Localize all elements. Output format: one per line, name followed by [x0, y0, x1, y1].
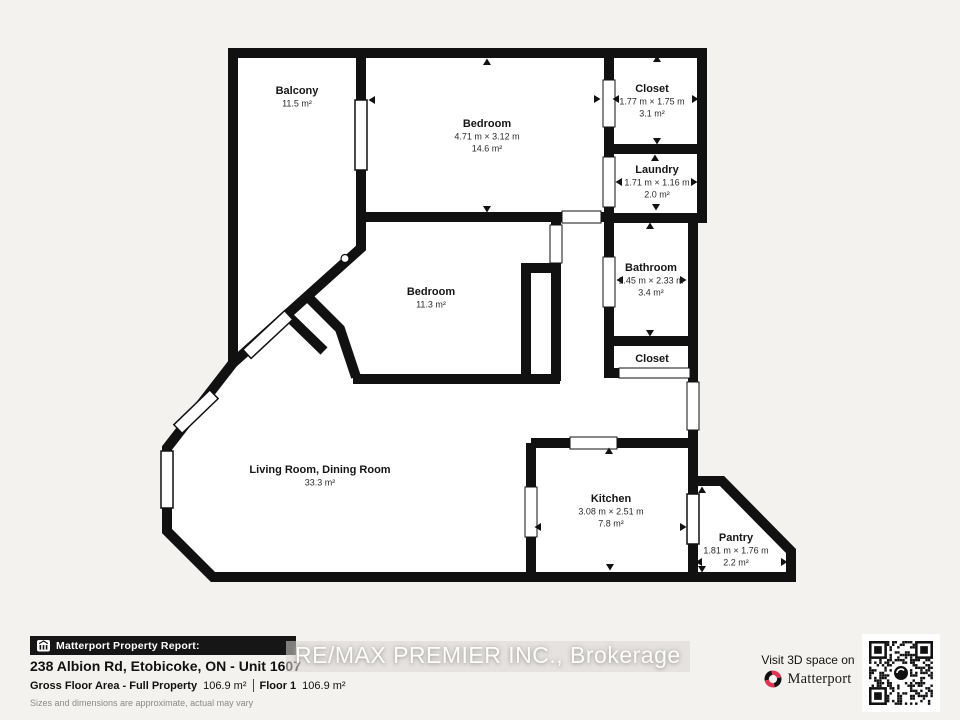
svg-text:3.1 m²: 3.1 m² [639, 109, 665, 119]
svg-text:Closet: Closet [635, 353, 669, 365]
window-living-left [161, 451, 173, 508]
floor-label: Floor 1 [260, 680, 297, 692]
floor-plan-svg: Balcony11.5 m²Bedroom4.71 m × 3.12 m14.6… [0, 0, 960, 632]
brokerage-watermark: RE/MAX PREMIER INC., Brokerage [286, 641, 690, 672]
svg-text:2.0 m²: 2.0 m² [644, 190, 670, 200]
svg-text:7.8 m²: 7.8 m² [598, 519, 624, 529]
svg-text:Balcony: Balcony [276, 85, 320, 97]
qr-code [862, 634, 940, 712]
gfa-value: 106.9 m² [203, 680, 246, 692]
disclaimer-text: Sizes and dimensions are approximate, ac… [30, 698, 253, 708]
svg-text:1.71 m × 1.16 m: 1.71 m × 1.16 m [624, 178, 689, 188]
svg-text:1.81 m × 1.76 m: 1.81 m × 1.76 m [703, 546, 768, 556]
door-bedroom-middle [550, 225, 562, 263]
building-icon [37, 639, 50, 652]
visit-3d-text: Visit 3D space on [756, 653, 860, 667]
svg-text:Bedroom: Bedroom [463, 118, 512, 130]
door-pivot-marker [341, 255, 349, 263]
room-label-closet-lower: Closet [635, 353, 669, 365]
matterport-report-bar: Matterport Property Report: [30, 636, 296, 655]
svg-text:3.4 m²: 3.4 m² [638, 288, 664, 298]
svg-text:Bathroom: Bathroom [625, 262, 677, 274]
matterport-logo-row: Matterport [756, 670, 860, 688]
door-closet-top [603, 80, 615, 127]
svg-text:Closet: Closet [635, 83, 669, 95]
svg-text:33.3 m²: 33.3 m² [305, 478, 336, 488]
matterport-wordmark: Matterport [787, 671, 851, 688]
gross-floor-area-line: Gross Floor Area - Full Property 106.9 m… [30, 679, 346, 692]
svg-text:14.6 m²: 14.6 m² [472, 144, 503, 154]
svg-text:Pantry: Pantry [719, 532, 754, 544]
svg-text:2.2 m²: 2.2 m² [723, 558, 749, 568]
door-entry [687, 382, 699, 430]
svg-text:Kitchen: Kitchen [591, 493, 632, 505]
window-balcony-bedroom [355, 100, 367, 170]
property-address: 238 Albion Rd, Etobicoke, ON - Unit 1607 [30, 658, 301, 674]
matterport-pinwheel-icon [764, 670, 782, 688]
report-bar-label: Matterport Property Report: [56, 640, 200, 652]
door-bathroom [603, 257, 615, 307]
visit-3d-block: Visit 3D space on Matterport [756, 653, 860, 688]
svg-text:1.77 m × 1.75 m: 1.77 m × 1.75 m [619, 97, 684, 107]
opening-kitchen-left [525, 487, 537, 537]
floor-value: 106.9 m² [302, 680, 345, 692]
svg-text:Living Room, Dining Room: Living Room, Dining Room [249, 464, 390, 476]
opening-corridor [562, 211, 601, 223]
opening-closet-lower [619, 368, 690, 378]
svg-text:1.45 m × 2.33 m: 1.45 m × 2.33 m [618, 276, 683, 286]
qr-code-pattern [869, 641, 933, 705]
gfa-label: Gross Floor Area - Full Property [30, 680, 197, 692]
separator [253, 679, 254, 692]
opening-kitchen-top [570, 437, 617, 449]
svg-text:4.71 m × 3.12 m: 4.71 m × 3.12 m [454, 132, 519, 142]
svg-text:Laundry: Laundry [635, 164, 679, 176]
svg-text:11.3 m²: 11.3 m² [416, 300, 446, 310]
door-laundry [603, 157, 615, 207]
svg-text:Bedroom: Bedroom [407, 286, 456, 298]
floorplan-page: Balcony11.5 m²Bedroom4.71 m × 3.12 m14.6… [0, 0, 960, 720]
window-pantry [687, 494, 699, 544]
svg-text:11.5 m²: 11.5 m² [282, 99, 312, 109]
svg-text:3.08 m × 2.51 m: 3.08 m × 2.51 m [578, 507, 643, 517]
